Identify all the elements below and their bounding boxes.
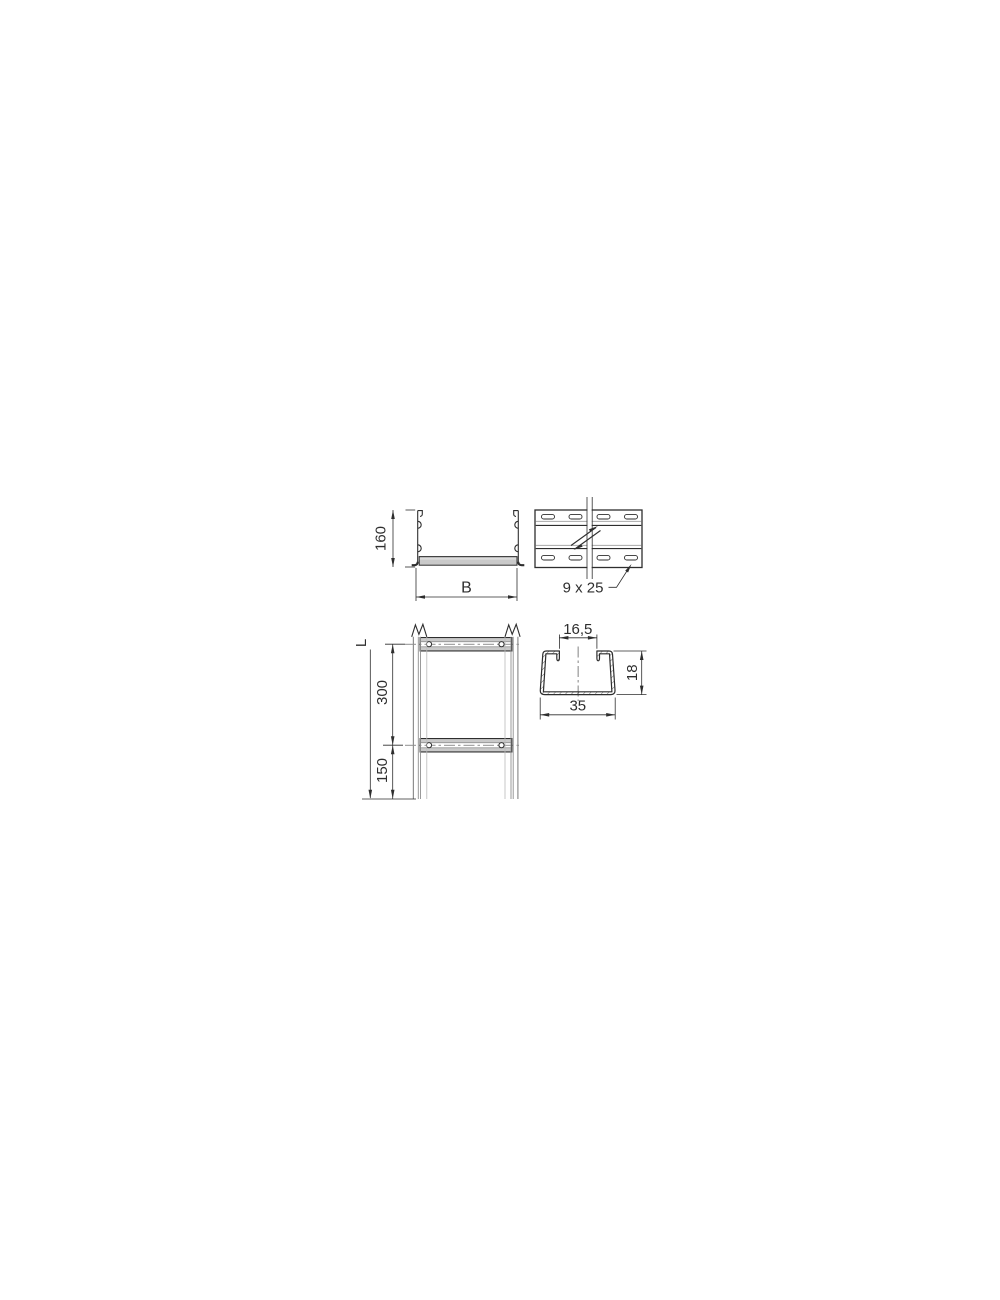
view-rung-section: 16,5 18 35 [540,621,646,720]
dim-label-rung-spacing-300: 300 [374,680,391,705]
right-rail-break-zigzag [505,624,520,637]
rung-1 [405,638,522,651]
slot [625,555,638,560]
dim-label-opening-16-5: 16,5 [563,621,592,638]
dim-label-height-18: 18 [624,664,641,681]
dim-label-length-L: L [353,639,370,647]
view-cross-section: 160 B [373,510,525,601]
dim-label-height-160: 160 [373,526,390,551]
left-wall-foot [412,562,418,565]
right-wall-foot [518,562,524,565]
slot [597,555,610,560]
rung-profile-metal [540,651,615,695]
rivet [499,642,504,647]
right-wall-top-hook [514,511,519,517]
slot-size-label: 9 x 25 [563,580,604,597]
slot [569,555,582,560]
dim-label-end-offset-150: 150 [374,758,391,783]
tray-bottom-bar [419,557,517,566]
dim-label-width-B: B [461,580,472,597]
drawing-page: 160 B 9 x 25 [0,0,1000,1300]
rung-2 [405,739,522,752]
rivet [499,743,504,748]
left-wall-top-hook [418,511,423,517]
view-plan: L 300 150 [353,624,522,799]
slot-leader-arrow [625,564,631,573]
slot [542,514,555,519]
slot [569,514,582,519]
view-side-rail: 9 x 25 [535,497,642,597]
slot [597,514,610,519]
slot [542,555,555,560]
slot [625,514,638,519]
dim-label-width-35: 35 [569,698,586,715]
left-rail-break-zigzag [412,624,427,637]
technical-drawing: 160 B 9 x 25 [0,0,1000,1300]
